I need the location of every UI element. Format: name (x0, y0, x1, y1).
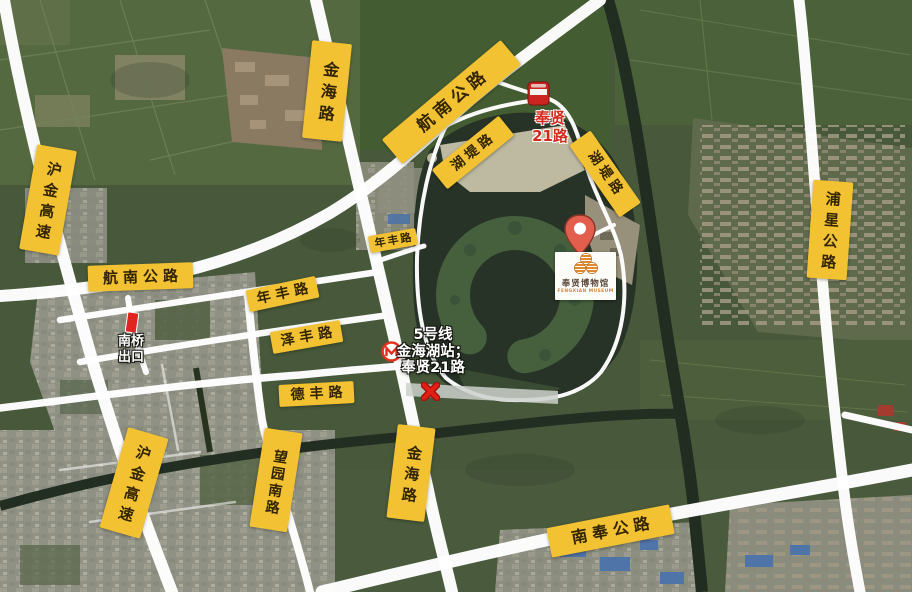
museum-card: 奉贤博物馆 FENGXIAN MUSEUM (555, 252, 616, 300)
satellite-map: 金海路 航南公路 湖堤路 湖堤路 沪金高速 航南公路 年丰路 年丰路 泽丰路 德… (0, 0, 912, 592)
nanqiao-exit-label: 南桥 出口 (102, 334, 160, 366)
bus-stop-icon (527, 81, 551, 111)
closed-x-icon (421, 382, 440, 405)
bus-stop-label-line2: 21路 (515, 127, 585, 145)
nanqiao-exit-line1: 南桥 (102, 334, 160, 350)
metro-station-text: 金海湖站； (392, 344, 474, 361)
bus-stop-label-line1: 奉贤 (515, 109, 585, 127)
museum-logo-icon (571, 252, 601, 276)
museum-name: 奉贤博物馆 (562, 277, 610, 289)
metro-station-label: 5号线 金海湖站； 奉贤21路 (392, 327, 474, 377)
bus-stop-label: 奉贤 21路 (515, 109, 585, 145)
road-label-hangnan-west: 航南公路 (88, 262, 194, 292)
nanqiao-exit-line2: 出口 (102, 350, 160, 366)
museum-name-en: FENGXIAN MUSEUM (557, 289, 613, 294)
metro-bus-text: 奉贤21路 (392, 360, 474, 377)
road-label-puxing: 浦星公路 (807, 180, 854, 281)
road-label-defeng: 德丰路 (278, 381, 354, 407)
metro-line-text: 5号线 (392, 327, 474, 344)
